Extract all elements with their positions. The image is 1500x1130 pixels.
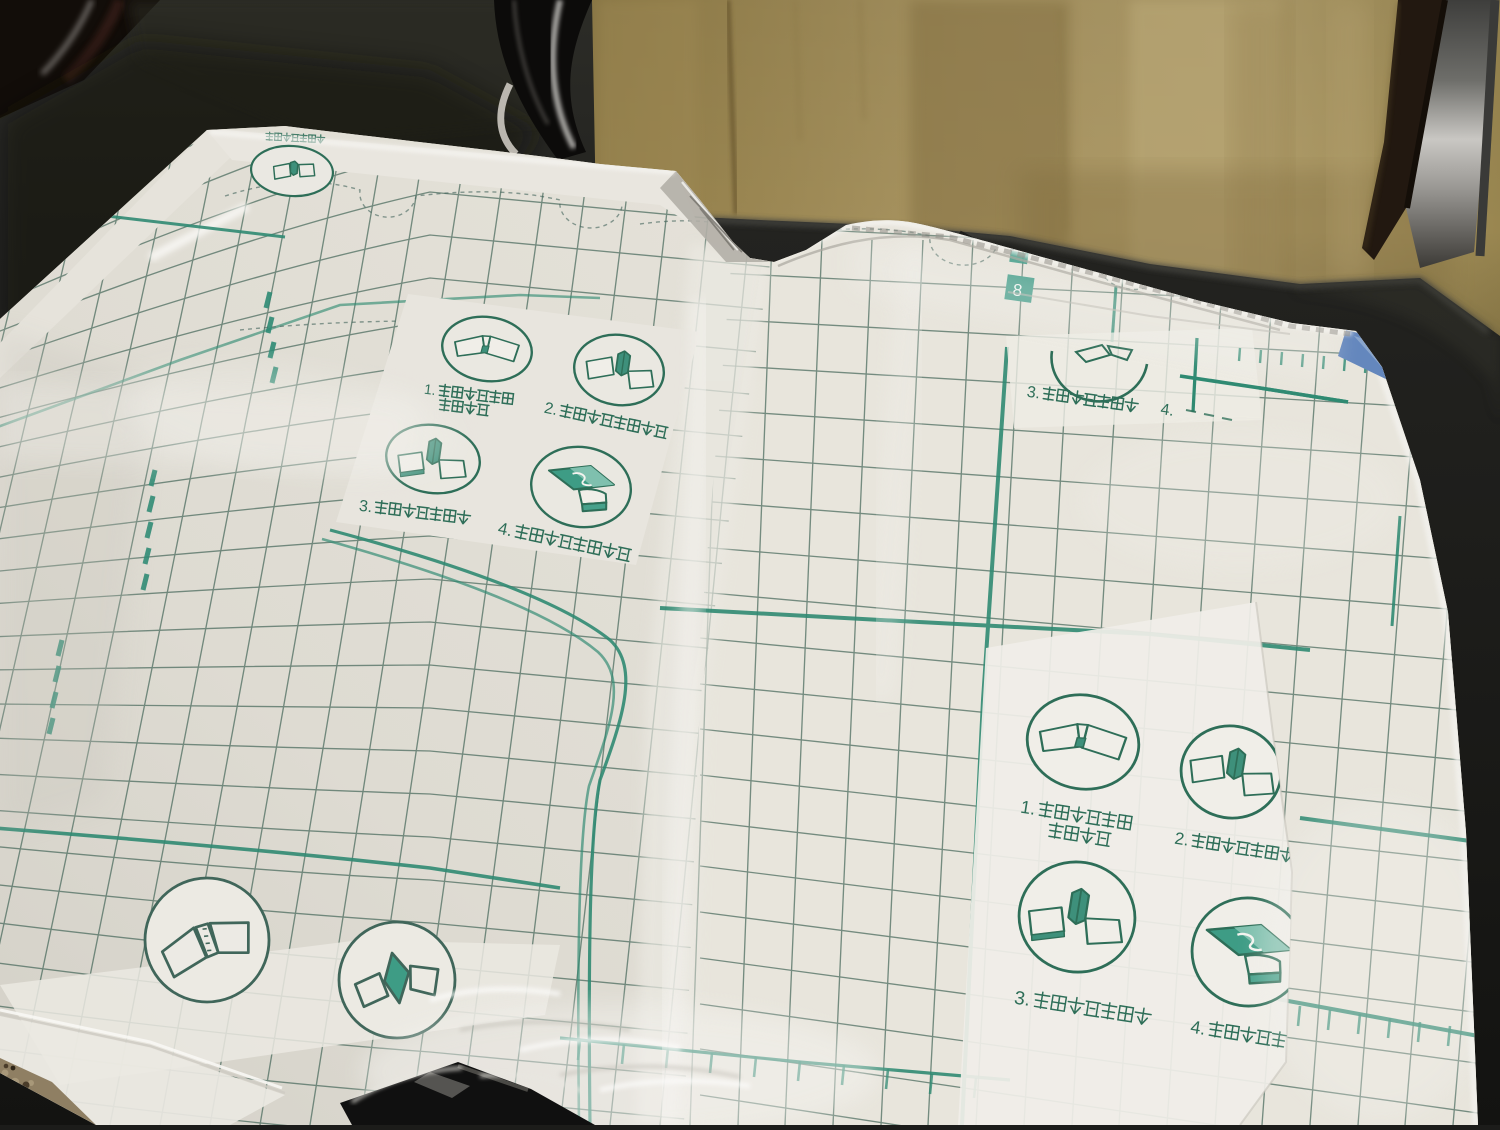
- svg-text:3.: 3.: [1013, 988, 1032, 1011]
- svg-text:3.: 3.: [1026, 384, 1042, 403]
- svg-text:1.: 1.: [423, 381, 437, 398]
- svg-text:1.: 1.: [1019, 797, 1037, 819]
- svg-text:4.: 4.: [1159, 401, 1175, 420]
- svg-text:2.: 2.: [1173, 829, 1190, 850]
- svg-text:4.: 4.: [1189, 1017, 1207, 1039]
- svg-text:3.: 3.: [358, 498, 373, 516]
